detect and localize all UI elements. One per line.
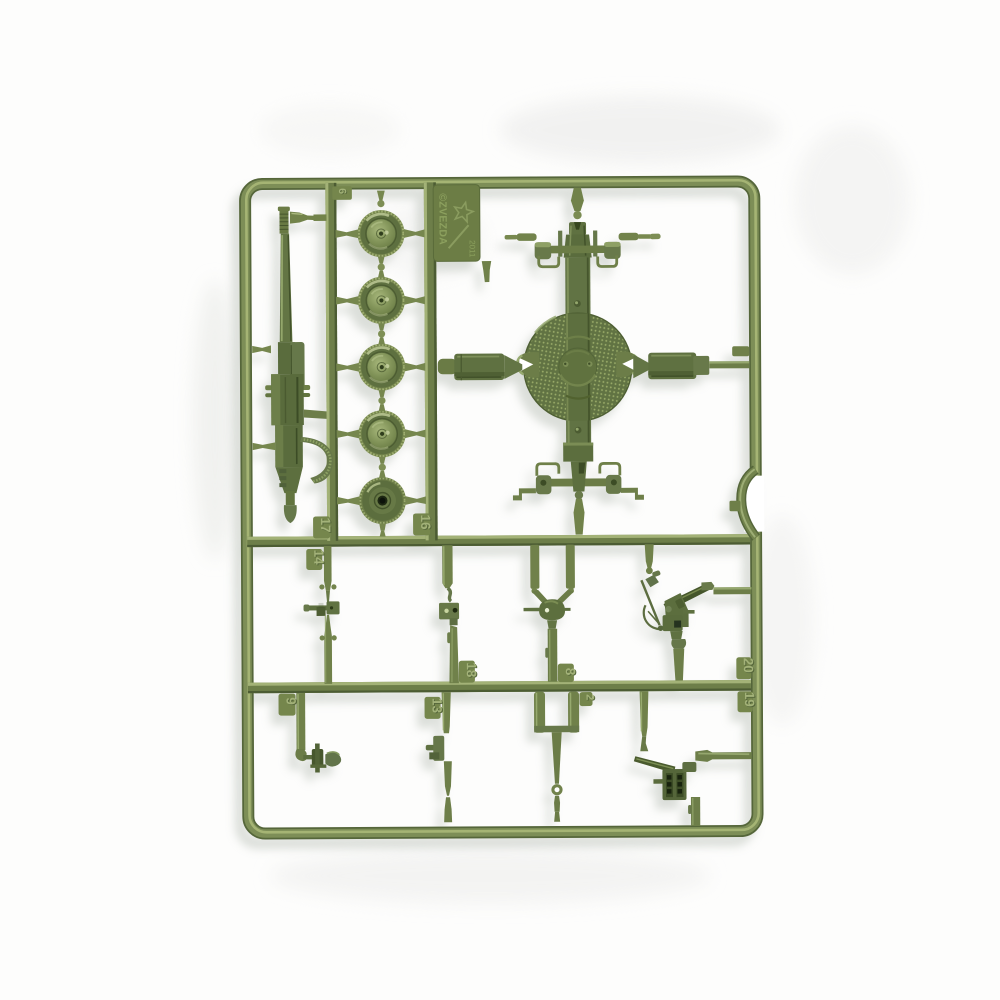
svg-text:13: 13 — [430, 698, 445, 714]
svg-text:9: 9 — [283, 697, 298, 705]
svg-text:2011: 2011 — [468, 240, 477, 258]
svg-text:©ZVEZDA: ©ZVEZDA — [436, 193, 448, 245]
svg-text:19: 19 — [742, 692, 757, 707]
svg-text:17: 17 — [318, 518, 333, 533]
svg-text:8: 8 — [563, 668, 578, 676]
svg-text:18: 18 — [464, 662, 479, 678]
svg-text:16: 16 — [418, 515, 433, 531]
svg-text:14: 14 — [311, 550, 326, 566]
svg-text:6: 6 — [336, 188, 348, 194]
svg-text:20: 20 — [741, 658, 756, 673]
svg-text:2: 2 — [583, 694, 595, 700]
